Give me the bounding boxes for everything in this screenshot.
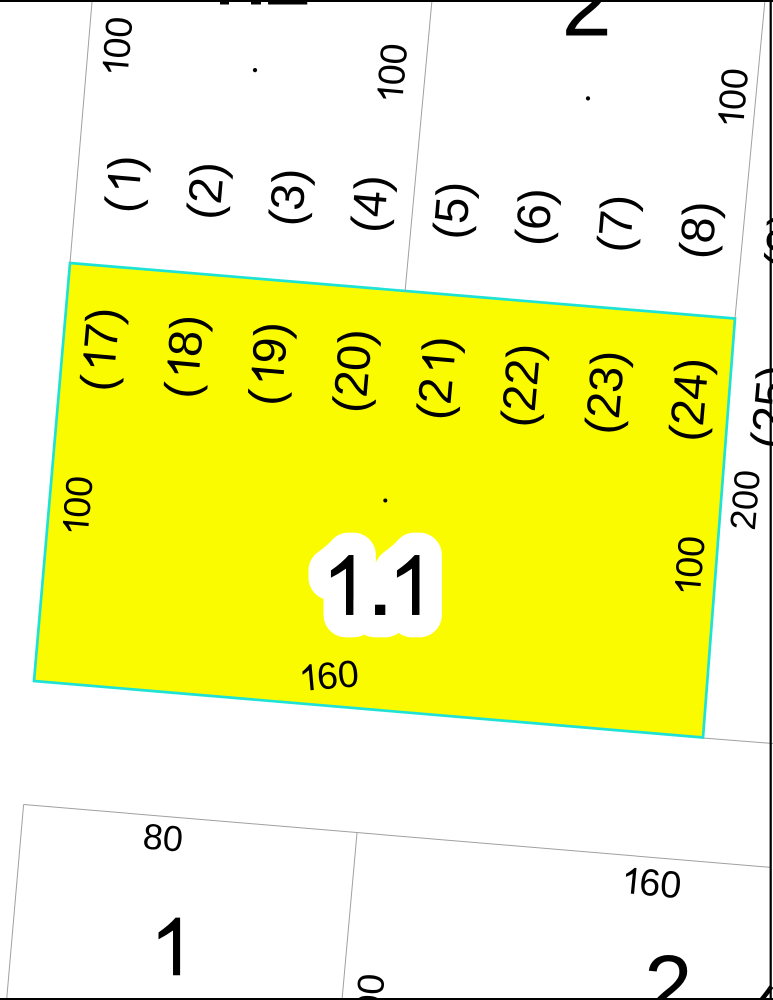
svg-text:(23): (23)	[575, 348, 635, 436]
svg-text:(24): (24)	[659, 356, 719, 444]
svg-text:0: 0	[669, 534, 713, 558]
svg-text:0: 0	[336, 653, 361, 697]
svg-text:(7): (7)	[587, 192, 645, 254]
svg-text:2: 2	[264, 0, 312, 24]
svg-text:0: 0	[712, 66, 756, 90]
svg-text:(3): (3)	[258, 166, 316, 228]
svg-text:0: 0	[349, 972, 393, 996]
svg-text:0: 0	[658, 863, 683, 907]
svg-text:(5): (5)	[423, 179, 481, 241]
svg-text:(2): (2)	[176, 160, 234, 222]
svg-text:0: 0	[372, 42, 416, 66]
svg-text:2: 2	[644, 938, 692, 1000]
svg-text:(22): (22)	[490, 341, 550, 429]
svg-text:(4): (4)	[340, 173, 398, 235]
svg-text:(20): (20)	[322, 327, 382, 415]
svg-text:0: 0	[57, 474, 101, 498]
svg-text:2: 2	[562, 0, 612, 56]
svg-text:0: 0	[97, 15, 141, 39]
svg-text:200: 200	[722, 468, 768, 531]
svg-text:(8): (8)	[669, 199, 727, 261]
svg-text:(6): (6)	[505, 186, 563, 248]
svg-text:2: 2	[408, 376, 463, 407]
svg-text:80: 80	[141, 815, 184, 859]
